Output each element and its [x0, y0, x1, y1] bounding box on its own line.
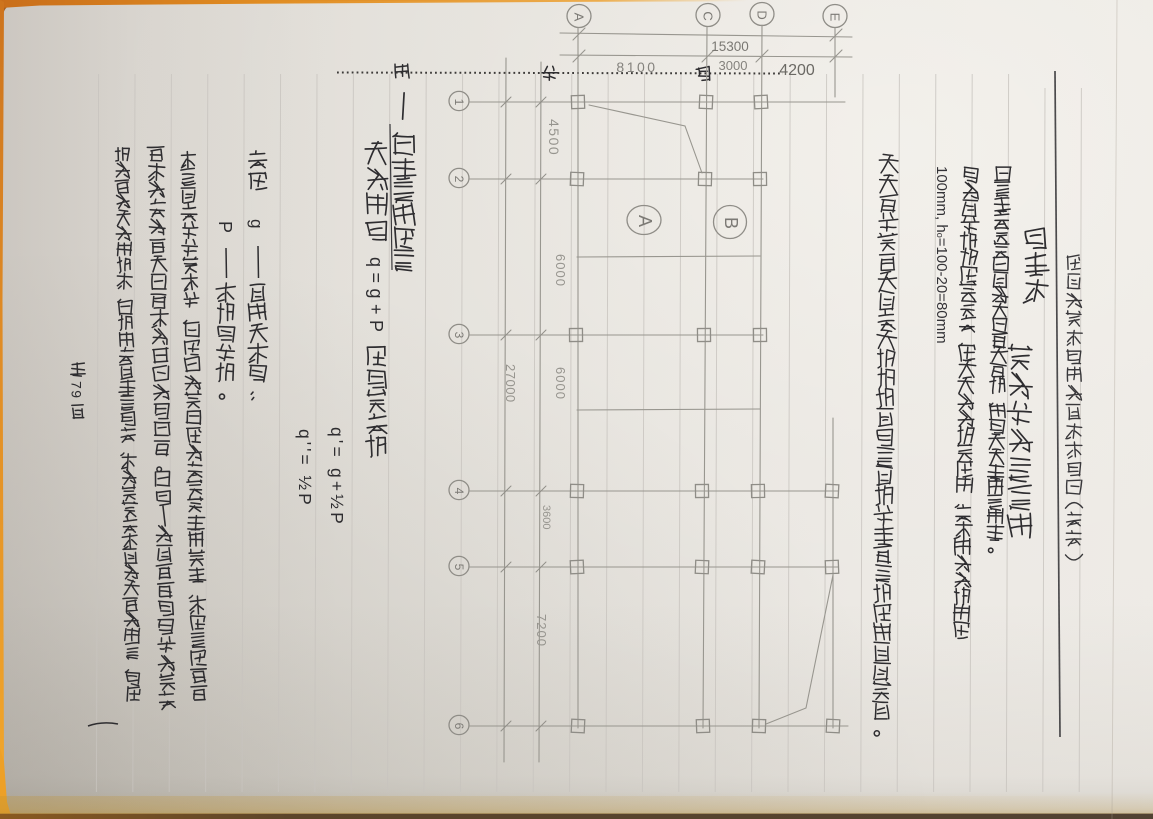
- svg-text:2: 2: [452, 176, 466, 183]
- svg-text:3600: 3600: [540, 505, 552, 529]
- svg-text:3000: 3000: [719, 58, 748, 73]
- svg-text:100mm, ho=100-20=80mm: 100mm, ho=100-20=80mm: [933, 166, 950, 344]
- svg-text:4200: 4200: [779, 62, 815, 79]
- svg-text:P: P: [215, 221, 235, 233]
- svg-text:4: 4: [452, 488, 466, 495]
- svg-text:B: B: [721, 217, 741, 229]
- svg-text:8100: 8100: [616, 59, 657, 75]
- svg-text:79: 79: [69, 381, 85, 400]
- svg-text:A: A: [635, 215, 655, 227]
- svg-text:q'= g+½P: q'= g+½P: [327, 427, 347, 527]
- svg-text:7200: 7200: [534, 614, 549, 647]
- svg-text:A: A: [572, 13, 587, 22]
- svg-text:q''= ½P: q''= ½P: [295, 429, 315, 508]
- svg-text:27000: 27000: [503, 364, 518, 403]
- svg-text:C: C: [701, 11, 716, 20]
- svg-text:6000: 6000: [553, 367, 568, 400]
- svg-text:1: 1: [452, 99, 466, 106]
- svg-text:D: D: [755, 10, 770, 19]
- svg-text:4500: 4500: [546, 119, 562, 156]
- svg-text:E: E: [828, 13, 843, 22]
- svg-text:6: 6: [452, 723, 466, 730]
- svg-text:3: 3: [452, 332, 466, 339]
- svg-text:5: 5: [452, 564, 466, 571]
- svg-text:g: g: [247, 219, 266, 228]
- svg-text:q=g+P: q=g+P: [366, 257, 386, 338]
- svg-text:6000: 6000: [553, 254, 568, 287]
- svg-text:15300: 15300: [711, 39, 749, 54]
